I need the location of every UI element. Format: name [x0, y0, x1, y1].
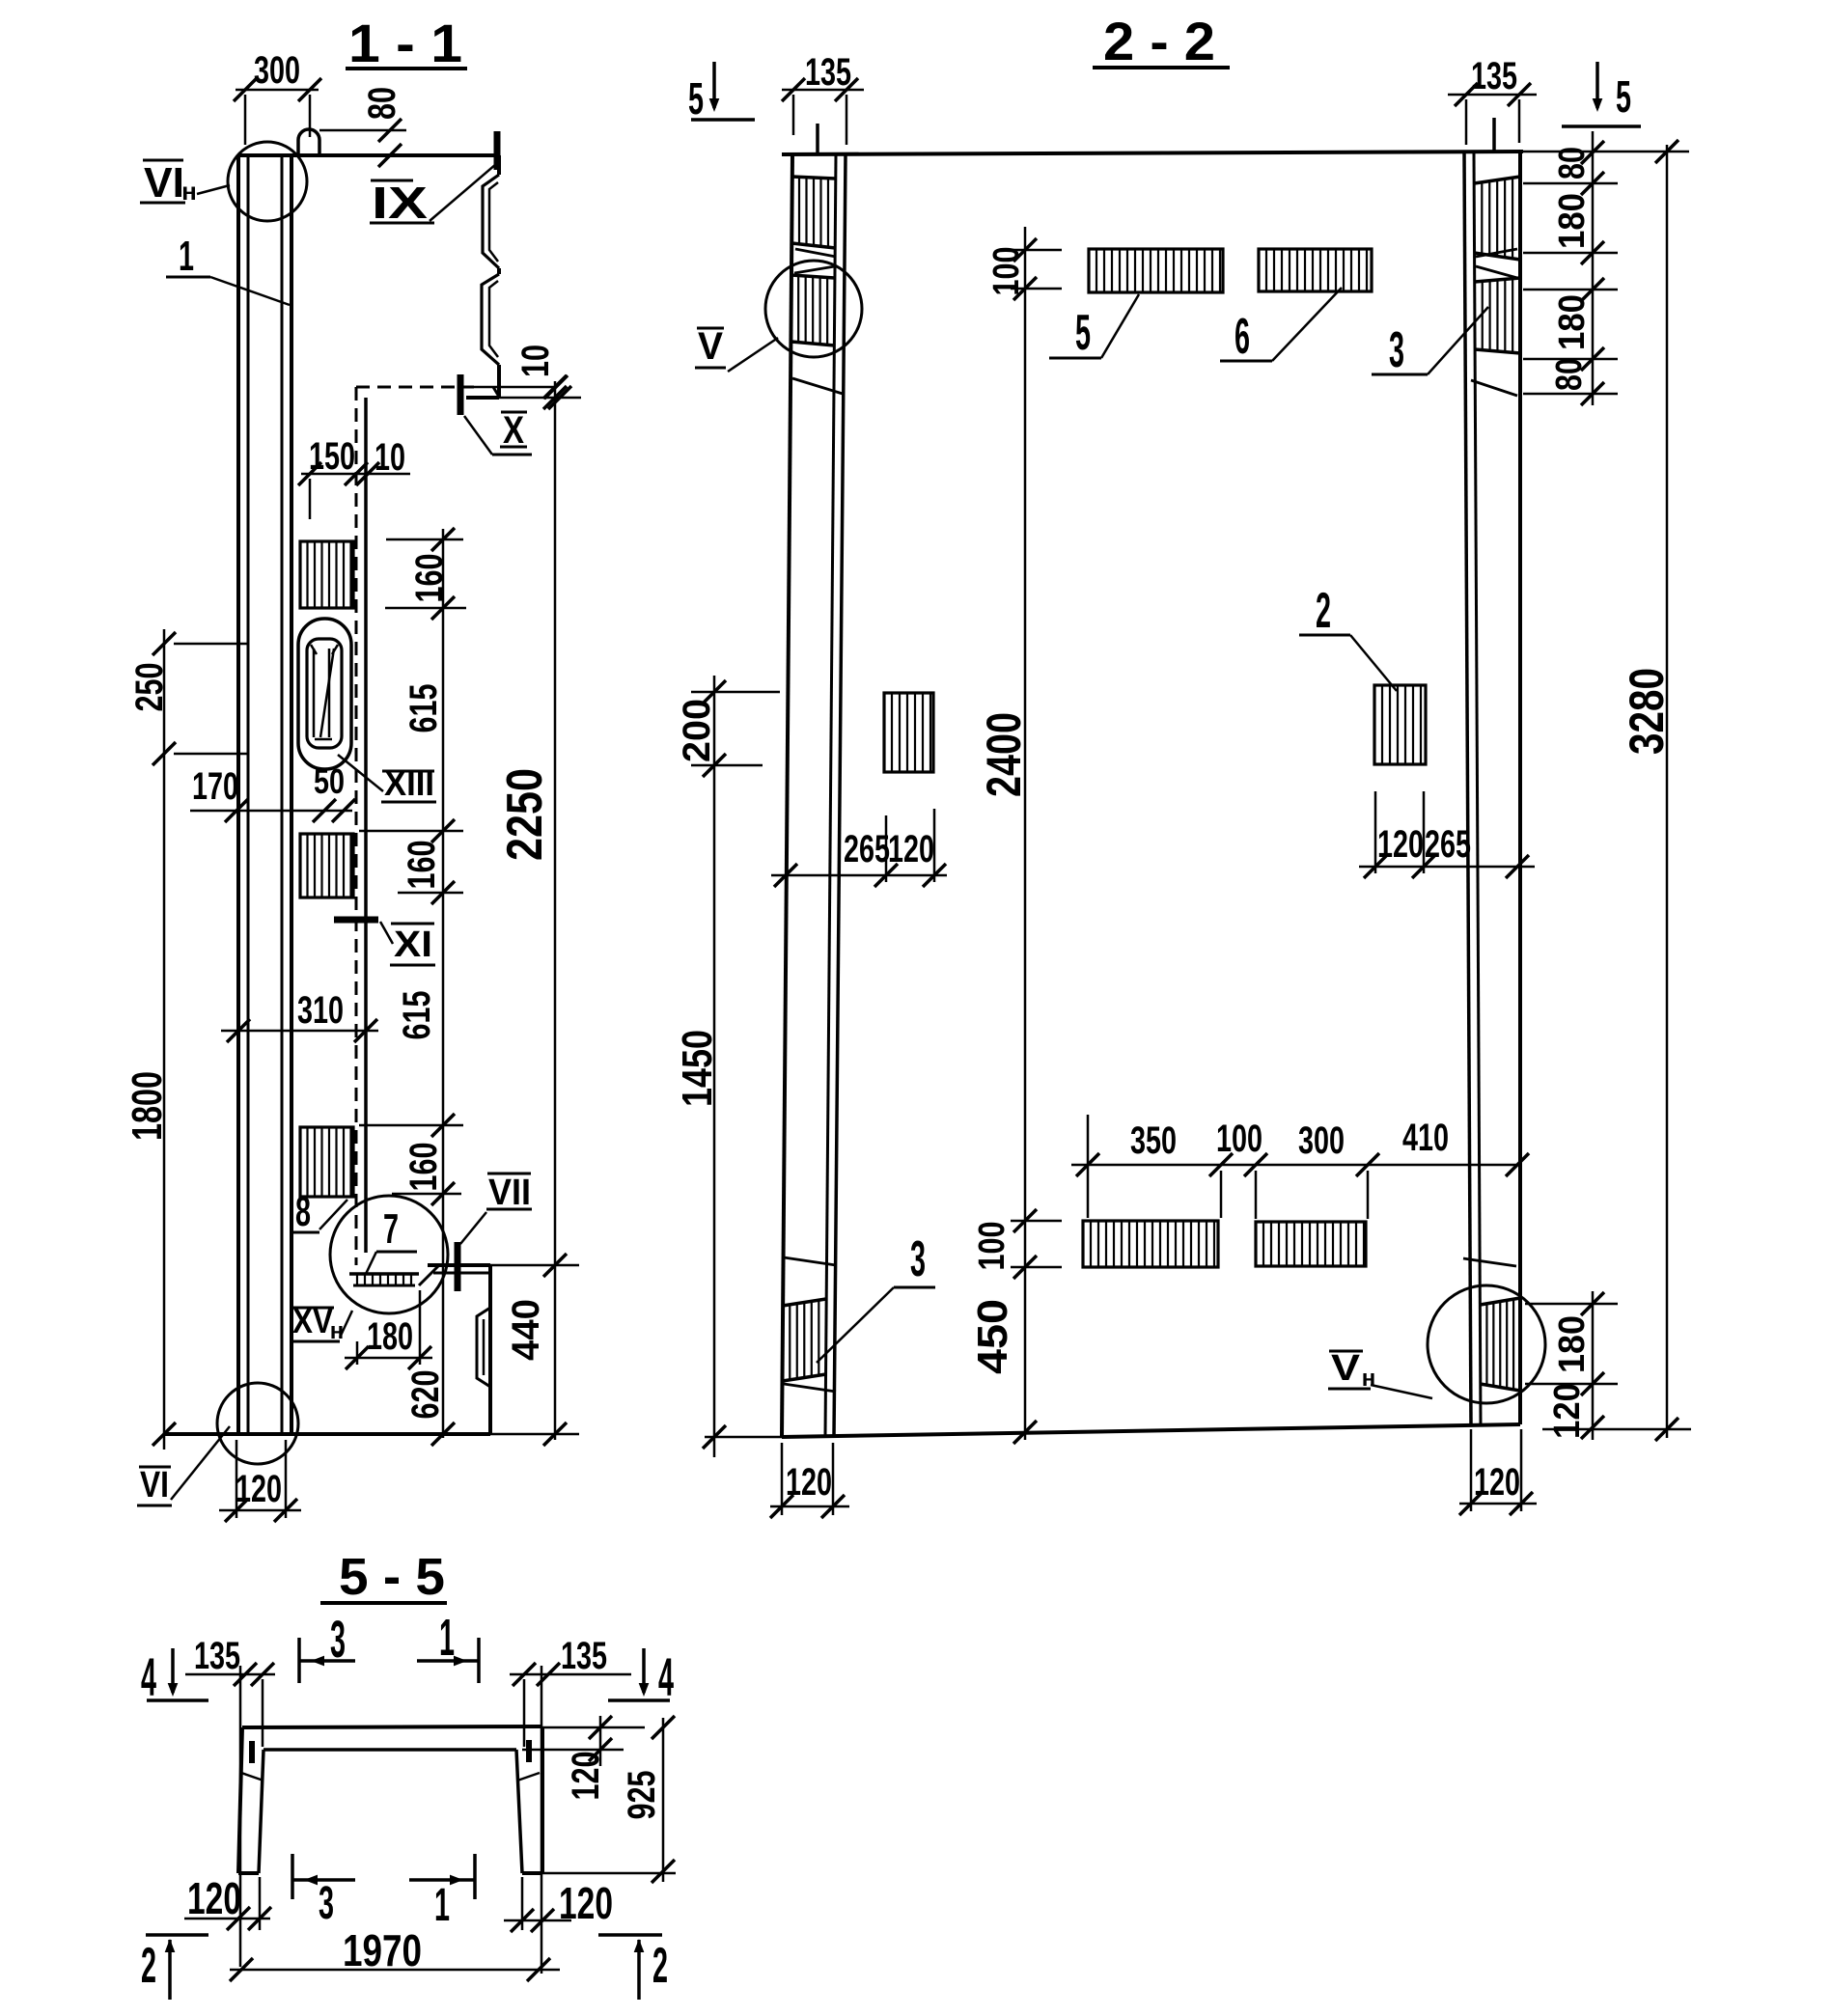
svg-text:310: 310: [297, 989, 344, 1032]
svg-text:170: 170: [192, 765, 238, 808]
svg-text:615: 615: [402, 684, 445, 733]
svg-text:50: 50: [314, 761, 345, 801]
svg-text:XI: XI: [394, 925, 432, 965]
svg-text:300: 300: [254, 49, 300, 92]
svg-text:VII: VII: [488, 1173, 531, 1213]
svg-text:120: 120: [565, 1752, 607, 1801]
svg-text:XV: XV: [292, 1301, 333, 1340]
svg-text:5: 5: [1616, 71, 1631, 122]
svg-text:3: 3: [1389, 322, 1404, 378]
svg-text:200: 200: [676, 699, 718, 762]
svg-text:2 - 2: 2 - 2: [1103, 11, 1215, 71]
svg-text:1970: 1970: [343, 1925, 422, 1975]
svg-text:100: 100: [986, 247, 1027, 296]
svg-text:100: 100: [972, 1222, 1013, 1271]
svg-text:X: X: [503, 409, 524, 452]
svg-text:3: 3: [910, 1231, 926, 1287]
svg-text:180: 180: [1552, 193, 1593, 249]
svg-text:180: 180: [1552, 294, 1593, 350]
svg-text:160: 160: [408, 554, 451, 603]
svg-text:1: 1: [439, 1609, 455, 1667]
svg-text:5: 5: [1075, 305, 1091, 361]
svg-text:1: 1: [179, 233, 194, 280]
svg-text:IX: IX: [372, 178, 428, 228]
svg-text:925: 925: [621, 1771, 663, 1820]
svg-text:5 - 5: 5 - 5: [339, 1548, 445, 1606]
svg-text:120: 120: [1474, 1461, 1520, 1504]
svg-text:10: 10: [514, 345, 557, 377]
svg-text:180: 180: [1552, 1315, 1593, 1373]
svg-text:80: 80: [1549, 358, 1590, 391]
svg-text:7: 7: [383, 1205, 399, 1253]
svg-text:3: 3: [319, 1878, 334, 1929]
svg-text:VI: VI: [144, 159, 184, 207]
svg-text:V: V: [1331, 1348, 1361, 1389]
svg-text:615: 615: [396, 991, 438, 1040]
svg-text:10: 10: [375, 436, 405, 479]
svg-text:8: 8: [295, 1188, 311, 1235]
svg-text:100: 100: [1216, 1118, 1262, 1160]
svg-text:450: 450: [969, 1299, 1016, 1374]
svg-text:300: 300: [1298, 1119, 1345, 1162]
svg-text:135: 135: [194, 1635, 240, 1677]
svg-text:250: 250: [128, 663, 171, 712]
svg-text:3: 3: [330, 1611, 346, 1669]
svg-text:2: 2: [141, 1938, 156, 1994]
svg-text:440: 440: [505, 1299, 547, 1361]
svg-text:160: 160: [402, 1143, 445, 1192]
svg-text:VI: VI: [140, 1465, 169, 1505]
svg-text:120: 120: [187, 1873, 241, 1923]
svg-text:160: 160: [401, 841, 443, 890]
svg-text:2400: 2400: [977, 712, 1031, 797]
svg-text:265: 265: [844, 828, 890, 870]
svg-text:XIII: XIII: [384, 763, 434, 803]
svg-text:135: 135: [1471, 55, 1517, 97]
svg-text:120: 120: [1547, 1383, 1588, 1439]
svg-text:1 - 1: 1 - 1: [348, 13, 462, 73]
svg-text:3280: 3280: [1620, 668, 1674, 755]
svg-text:1800: 1800: [124, 1071, 171, 1141]
svg-text:6: 6: [1235, 309, 1250, 365]
svg-text:180: 180: [367, 1315, 413, 1358]
svg-text:135: 135: [805, 51, 851, 94]
svg-text:80: 80: [1552, 147, 1593, 180]
svg-text:410: 410: [1402, 1117, 1449, 1159]
svg-text:4: 4: [141, 1646, 156, 1707]
svg-text:350: 350: [1130, 1119, 1177, 1162]
svg-text:4: 4: [658, 1646, 674, 1707]
svg-text:1450: 1450: [674, 1030, 721, 1107]
svg-text:135: 135: [561, 1635, 607, 1677]
svg-text:80: 80: [361, 87, 403, 120]
svg-text:620: 620: [404, 1370, 447, 1420]
svg-text:V: V: [698, 325, 723, 368]
svg-text:2: 2: [1316, 583, 1331, 639]
svg-text:5: 5: [688, 73, 704, 124]
svg-text:1: 1: [434, 1880, 450, 1931]
svg-text:2250: 2250: [497, 768, 553, 861]
svg-text:2: 2: [652, 1938, 668, 1994]
svg-text:150: 150: [309, 435, 355, 478]
